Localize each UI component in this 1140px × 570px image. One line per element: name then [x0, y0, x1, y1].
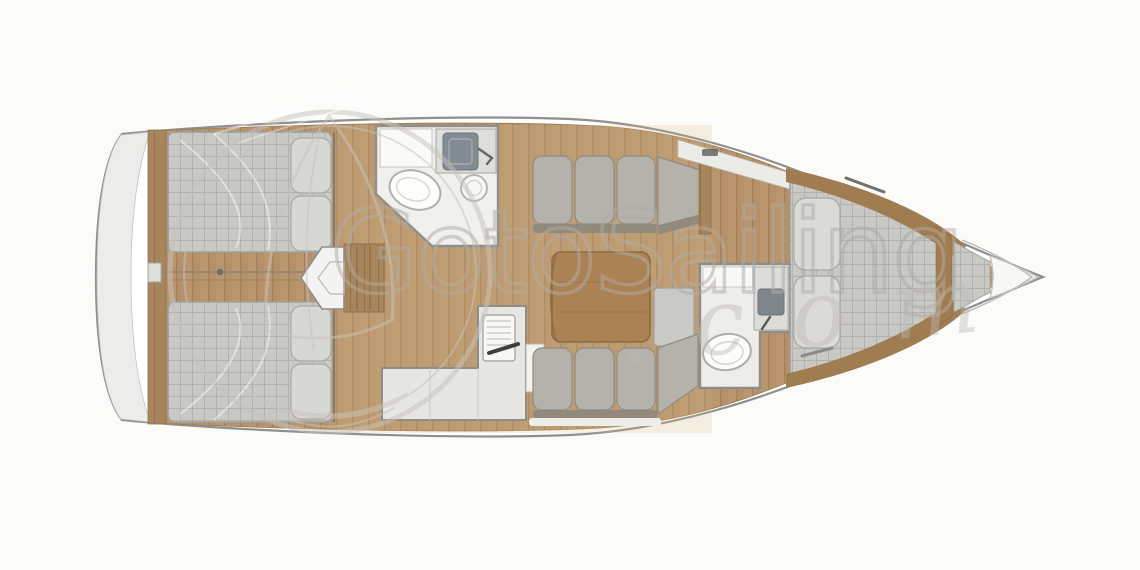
sink-basin [758, 289, 784, 315]
boat-floor-plan-image: GotoSailing .com [0, 0, 1140, 570]
pillow [794, 198, 840, 270]
sofa-top [533, 156, 711, 235]
sofa-bottom-edge-shadow [533, 410, 657, 418]
boat-floor-plan [0, 0, 1140, 570]
divider-handle [217, 269, 223, 275]
sofa-bottom-base [529, 418, 661, 426]
forward-head-cabinet [703, 267, 753, 287]
saloon [529, 156, 711, 426]
pillow [291, 196, 331, 251]
sofa-top-edge-shadow [533, 224, 657, 233]
deck-hatch [702, 149, 718, 156]
saloon-table [551, 252, 650, 342]
companionway-steps [344, 244, 384, 312]
pillow [794, 276, 840, 348]
bow-locker [990, 256, 1038, 298]
transom-fitting [148, 263, 161, 282]
berth-trim-vertical [936, 226, 952, 328]
saloon-partition [699, 156, 711, 234]
